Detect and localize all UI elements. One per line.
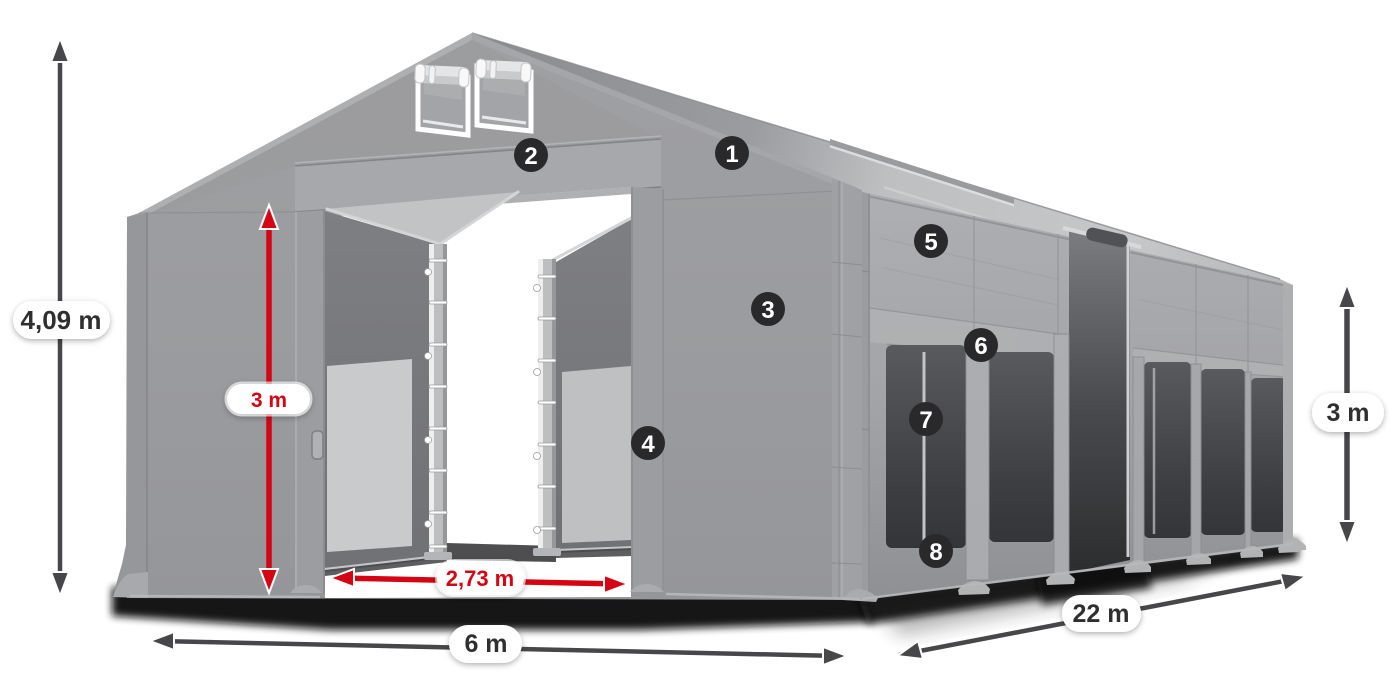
svg-text:5: 5 bbox=[924, 229, 937, 256]
svg-text:2: 2 bbox=[524, 143, 537, 170]
svg-text:6: 6 bbox=[974, 333, 987, 360]
svg-text:8: 8 bbox=[929, 539, 942, 566]
svg-text:6 m: 6 m bbox=[464, 630, 507, 658]
svg-text:1: 1 bbox=[725, 141, 738, 168]
svg-text:2,73 m: 2,73 m bbox=[446, 566, 515, 591]
svg-text:7: 7 bbox=[919, 407, 932, 434]
svg-text:3 m: 3 m bbox=[1326, 399, 1369, 427]
svg-text:3: 3 bbox=[761, 297, 774, 324]
svg-text:3 m: 3 m bbox=[251, 389, 287, 412]
svg-text:4: 4 bbox=[641, 431, 655, 458]
svg-text:4,09 m: 4,09 m bbox=[21, 305, 102, 335]
svg-text:22 m: 22 m bbox=[1073, 600, 1130, 628]
